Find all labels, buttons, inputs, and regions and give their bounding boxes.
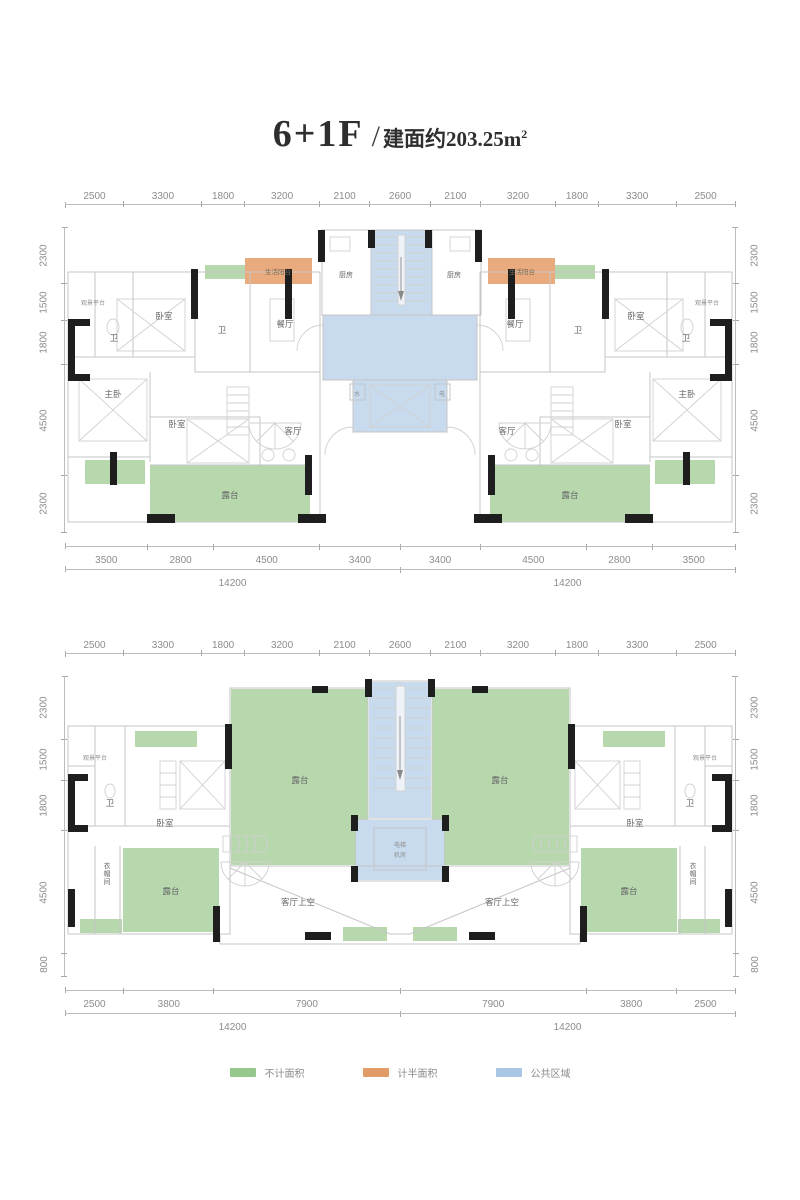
dimension-value: 7900: [296, 999, 318, 1010]
dimension-cell: 3300: [598, 186, 676, 205]
room-label-viewing-platform: 观景平台: [693, 754, 717, 762]
dimension-cell: 1500: [735, 739, 775, 780]
room-label-electric: 电: [439, 390, 445, 398]
plan1-grid: 2500330018003200210026002100320018003300…: [25, 186, 775, 589]
plan1-right-dimensions: 23001500180045002300: [735, 227, 775, 532]
dimension-value: 3800: [620, 999, 642, 1010]
plan1-bottom-dimensions: 35002800450034003400450028003500: [65, 546, 735, 566]
room-label-living: 客厅: [284, 426, 302, 436]
dimension-cell: 1800: [556, 186, 598, 205]
dimension-cell: 1800: [25, 781, 65, 831]
dimension-value: 3200: [507, 640, 529, 651]
dimension-value: 2500: [694, 999, 716, 1010]
dimension-value: 1800: [212, 191, 234, 202]
dimension-value: 14200: [554, 578, 582, 589]
dimension-cell: 800: [25, 954, 65, 976]
room-label-bedroom: 卧室: [155, 311, 173, 321]
dimension-cell: 2800: [586, 546, 652, 566]
dimension-value: 800: [39, 957, 50, 974]
dimension-cell: 2300: [25, 475, 65, 532]
dimension-cell: 3400: [400, 546, 480, 566]
green-bay-right: [603, 731, 665, 747]
legend-item-public-area: 公共区域: [496, 1065, 571, 1080]
dimension-value: 1800: [212, 640, 234, 651]
dimension-value: 2600: [389, 191, 411, 202]
dimension-value: 3200: [271, 640, 293, 651]
dimension-cell: 1800: [25, 320, 65, 364]
plan2-grid: 2500330018003200210026002100320018003300…: [25, 635, 775, 1033]
room-label-master-bedroom: 主卧: [678, 389, 696, 399]
plan2-top-dimensions: 2500330018003200210026002100320018003300…: [65, 635, 735, 654]
dimension-cell: 3200: [244, 635, 320, 654]
legend-item-no-area: 不计面积: [230, 1065, 305, 1080]
dimension-value: 2300: [39, 244, 50, 266]
dimension-value: 3200: [507, 191, 529, 202]
dimension-value: 2600: [389, 640, 411, 651]
dimension-value: 1500: [750, 291, 761, 313]
dimension-value: 1500: [39, 291, 50, 313]
dimension-cell: 3800: [586, 990, 676, 1010]
dimension-cell: 3500: [652, 546, 735, 566]
room-label-terrace: 露台: [221, 490, 238, 500]
dimension-value: 1800: [566, 191, 588, 202]
dimension-value: 1800: [566, 640, 588, 651]
room-label-kitchen: 厨房: [447, 270, 461, 279]
dimension-cell: 2500: [676, 990, 735, 1010]
dimension-cell: 2800: [148, 546, 214, 566]
dimension-value: 4500: [750, 881, 761, 903]
dimension-total-cell: 14200: [65, 569, 400, 589]
legend-label: 不计面积: [265, 1065, 305, 1080]
plan2-total-dimensions: 1420014200: [65, 1013, 735, 1033]
room-label-dining: 餐厅: [506, 319, 524, 329]
dimension-cell: 2600: [369, 186, 430, 205]
dimension-cell: 2100: [431, 186, 481, 205]
dimension-cell: 2300: [735, 475, 775, 532]
floor-plan-1-svg: 观景平台 观景平台 卫 卫 卧室 卧室 卫 卫 餐厅 餐厅 厨房 厨房 生活阳台…: [65, 227, 735, 532]
elevator-machine-room-zone: [356, 820, 444, 880]
plan2-left-dimensions: 2300150018004500800: [25, 676, 65, 976]
legend-swatch-orange: [363, 1068, 389, 1077]
dimension-value: 3300: [626, 191, 648, 202]
room-label-life-balcony: 生活阳台: [509, 267, 535, 276]
dimension-value: 14200: [219, 578, 247, 589]
room-label-terrace: 露台: [620, 886, 637, 896]
room-label-living-void: 客厅上空: [281, 897, 315, 907]
dimension-value: 4500: [522, 555, 544, 566]
dimension-cell: 3500: [65, 546, 148, 566]
dimension-value: 2100: [444, 640, 466, 651]
room-label-viewing-platform: 观景平台: [83, 754, 107, 762]
dimension-value: 2300: [750, 244, 761, 266]
room-label-terrace: 露台: [291, 775, 308, 785]
legend: 不计面积 计半面积 公共区域: [0, 1065, 800, 1080]
dimension-cell: 2500: [676, 635, 735, 654]
dimension-value: 3300: [626, 640, 648, 651]
room-label-bath: 卫: [686, 798, 695, 808]
legend-swatch-green: [230, 1068, 256, 1077]
dimension-cell: 2100: [320, 635, 370, 654]
dimension-value: 2800: [608, 555, 630, 566]
room-label-dining: 餐厅: [276, 319, 294, 329]
plan1-total-dimensions: 1420014200: [65, 569, 735, 589]
dimension-value: 4500: [256, 555, 278, 566]
room-label-terrace: 露台: [491, 775, 508, 785]
title-area-sup: 2: [521, 127, 527, 141]
room-label-life-balcony: 生活阳台: [265, 267, 291, 276]
dimension-value: 1500: [750, 749, 761, 771]
dimension-value: 3300: [152, 640, 174, 651]
dimension-cell: 1800: [556, 635, 598, 654]
dimension-value: 3400: [349, 555, 371, 566]
room-label-bedroom: 卧室: [626, 818, 644, 828]
dimension-value: 3400: [429, 555, 451, 566]
dimension-value: 2300: [39, 493, 50, 515]
room-label-elevator-machine-2: 机房: [394, 851, 406, 859]
title-floors: 6+1F: [273, 113, 364, 155]
dimension-value: 2500: [83, 640, 105, 651]
room-label-bath: 卫: [106, 798, 115, 808]
green-bay-left: [135, 731, 197, 747]
room-label-elevator-machine-1: 电梯: [394, 841, 406, 849]
dimension-value: 3300: [152, 191, 174, 202]
dimension-cell: 4500: [480, 546, 586, 566]
dimension-value: 3500: [683, 555, 705, 566]
dimension-value: 1800: [39, 794, 50, 816]
dimension-value: 14200: [554, 1022, 582, 1033]
dimension-value: 1800: [750, 794, 761, 816]
room-label-master-bedroom: 主卧: [104, 389, 122, 399]
legend-label: 计半面积: [398, 1065, 438, 1080]
dimension-value: 2500: [694, 191, 716, 202]
dimension-cell: 2500: [65, 635, 124, 654]
dimension-cell: 3200: [480, 186, 556, 205]
plan2-right-dimensions: 2300150018004500800: [735, 676, 775, 976]
green-strip-center-right: [413, 927, 457, 941]
dimension-cell: 2300: [735, 676, 775, 739]
plan2-bottom-dimensions: 250038007900790038002500: [65, 990, 735, 1010]
dimension-cell: 4500: [735, 365, 775, 476]
room-label-bedroom: 卧室: [627, 311, 645, 321]
dimension-cell: 4500: [25, 365, 65, 476]
dimension-value: 3200: [271, 191, 293, 202]
room-label-terrace: 露台: [561, 490, 578, 500]
legend-item-half-area: 计半面积: [363, 1065, 438, 1080]
dimension-cell: 2100: [431, 635, 481, 654]
room-label-viewing-platform: 观景平台: [81, 299, 105, 307]
legend-swatch-blue: [496, 1068, 522, 1077]
dimension-value: 4500: [39, 409, 50, 431]
dimension-cell: 3200: [480, 635, 556, 654]
dimension-cell: 3400: [320, 546, 400, 566]
dimension-cell: 800: [735, 954, 775, 976]
dimension-cell: 2500: [65, 990, 124, 1010]
dimension-cell: 3300: [598, 635, 676, 654]
dimension-value: 2300: [750, 697, 761, 719]
dimension-cell: 1500: [25, 284, 65, 321]
dimension-total-cell: 14200: [400, 1013, 735, 1033]
room-label-bath: 卫: [682, 333, 691, 343]
dimension-cell: 2500: [65, 186, 124, 205]
plan1-drawing: 观景平台 观景平台 卫 卫 卧室 卧室 卫 卫 餐厅 餐厅 厨房 厨房 生活阳台…: [65, 227, 735, 532]
dimension-cell: 3200: [244, 186, 320, 205]
dimension-value: 4500: [39, 881, 50, 903]
dimension-cell: 1800: [735, 781, 775, 831]
room-label-bath: 卫: [218, 325, 227, 335]
room-label-kitchen: 厨房: [339, 270, 353, 279]
dimension-value: 1500: [39, 749, 50, 771]
dimension-cell: 2300: [735, 227, 775, 284]
dimension-cell: 2300: [25, 227, 65, 284]
room-label-bedroom: 卧室: [156, 818, 174, 828]
dimension-value: 3800: [158, 999, 180, 1010]
dimension-value: 2100: [333, 191, 355, 202]
room-label-terrace: 露台: [162, 886, 179, 896]
dimension-value: 800: [750, 957, 761, 974]
dimension-value: 2500: [83, 191, 105, 202]
room-label-bath: 卫: [110, 333, 119, 343]
floor-plan-1: 2500330018003200210026002100320018003300…: [0, 186, 800, 589]
dimension-cell: 4500: [25, 830, 65, 954]
plan1-left-dimensions: 23001500180045002300: [25, 227, 65, 532]
dimension-value: 1800: [39, 331, 50, 353]
room-label-cloakroom: 衣帽间: [104, 861, 111, 886]
dimension-value: 2100: [444, 191, 466, 202]
room-label-cloakroom: 衣帽间: [690, 861, 697, 886]
dimension-cell: 1500: [25, 739, 65, 780]
dimension-value: 2300: [39, 697, 50, 719]
floor-plan-page: 6+1F/建面约203.25m2 25003300180032002100260…: [0, 0, 800, 1200]
dimension-cell: 4500: [214, 546, 320, 566]
public-hall-zone: [323, 315, 477, 380]
dimension-total-cell: 14200: [65, 1013, 400, 1033]
dimension-value: 14200: [219, 1022, 247, 1033]
plan2-drawing: 观景平台 观景平台 卫 卫 卧室 卧室 衣帽间 衣帽间 露台 露台 露台 露台 …: [65, 676, 735, 976]
dimension-value: 2500: [83, 999, 105, 1010]
dimension-value: 3500: [95, 555, 117, 566]
dimension-cell: 7900: [214, 990, 400, 1010]
dimension-cell: 3300: [124, 186, 202, 205]
page-title: 6+1F/建面约203.25m2: [0, 0, 800, 156]
floor-plan-2-svg: 观景平台 观景平台 卫 卫 卧室 卧室 衣帽间 衣帽间 露台 露台 露台 露台 …: [65, 676, 735, 976]
room-label-viewing-platform: 观景平台: [695, 299, 719, 307]
title-area: 建面约203.25m2: [383, 127, 527, 151]
dimension-cell: 1800: [735, 320, 775, 364]
dimension-value: 4500: [750, 409, 761, 431]
room-label-living-void: 客厅上空: [485, 897, 519, 907]
room-label-bedroom: 卧室: [614, 419, 632, 429]
dimension-value: 2300: [750, 493, 761, 515]
dimension-value: 2800: [169, 555, 191, 566]
title-slash: /: [372, 120, 380, 153]
dimension-cell: 3300: [124, 635, 202, 654]
dimension-value: 2500: [694, 640, 716, 651]
dimension-cell: 1800: [202, 186, 244, 205]
green-strip-right: [678, 919, 720, 933]
dimension-cell: 1500: [735, 284, 775, 321]
dimension-cell: 2300: [25, 676, 65, 739]
dimension-cell: 7900: [400, 990, 586, 1010]
room-label-living: 客厅: [498, 426, 516, 436]
dimension-cell: 2500: [676, 186, 735, 205]
room-label-bedroom: 卧室: [168, 419, 186, 429]
dimension-cell: 1800: [202, 635, 244, 654]
dimension-value: 7900: [482, 999, 504, 1010]
green-strip-center-left: [343, 927, 387, 941]
legend-label: 公共区域: [531, 1065, 571, 1080]
dimension-cell: 3800: [124, 990, 214, 1010]
green-strip-left: [80, 919, 122, 933]
room-label-water: 水: [354, 390, 360, 398]
dimension-cell: 2100: [320, 186, 370, 205]
dimension-value: 2100: [333, 640, 355, 651]
plan1-top-dimensions: 2500330018003200210026002100320018003300…: [65, 186, 735, 205]
floor-plan-2: 2500330018003200210026002100320018003300…: [0, 635, 800, 1033]
dimension-cell: 2600: [369, 635, 430, 654]
dimension-value: 1800: [750, 331, 761, 353]
title-area-text: 建面约203.25m: [383, 127, 521, 151]
room-label-bath: 卫: [574, 325, 583, 335]
dimension-cell: 4500: [735, 830, 775, 954]
dimension-total-cell: 14200: [400, 569, 735, 589]
